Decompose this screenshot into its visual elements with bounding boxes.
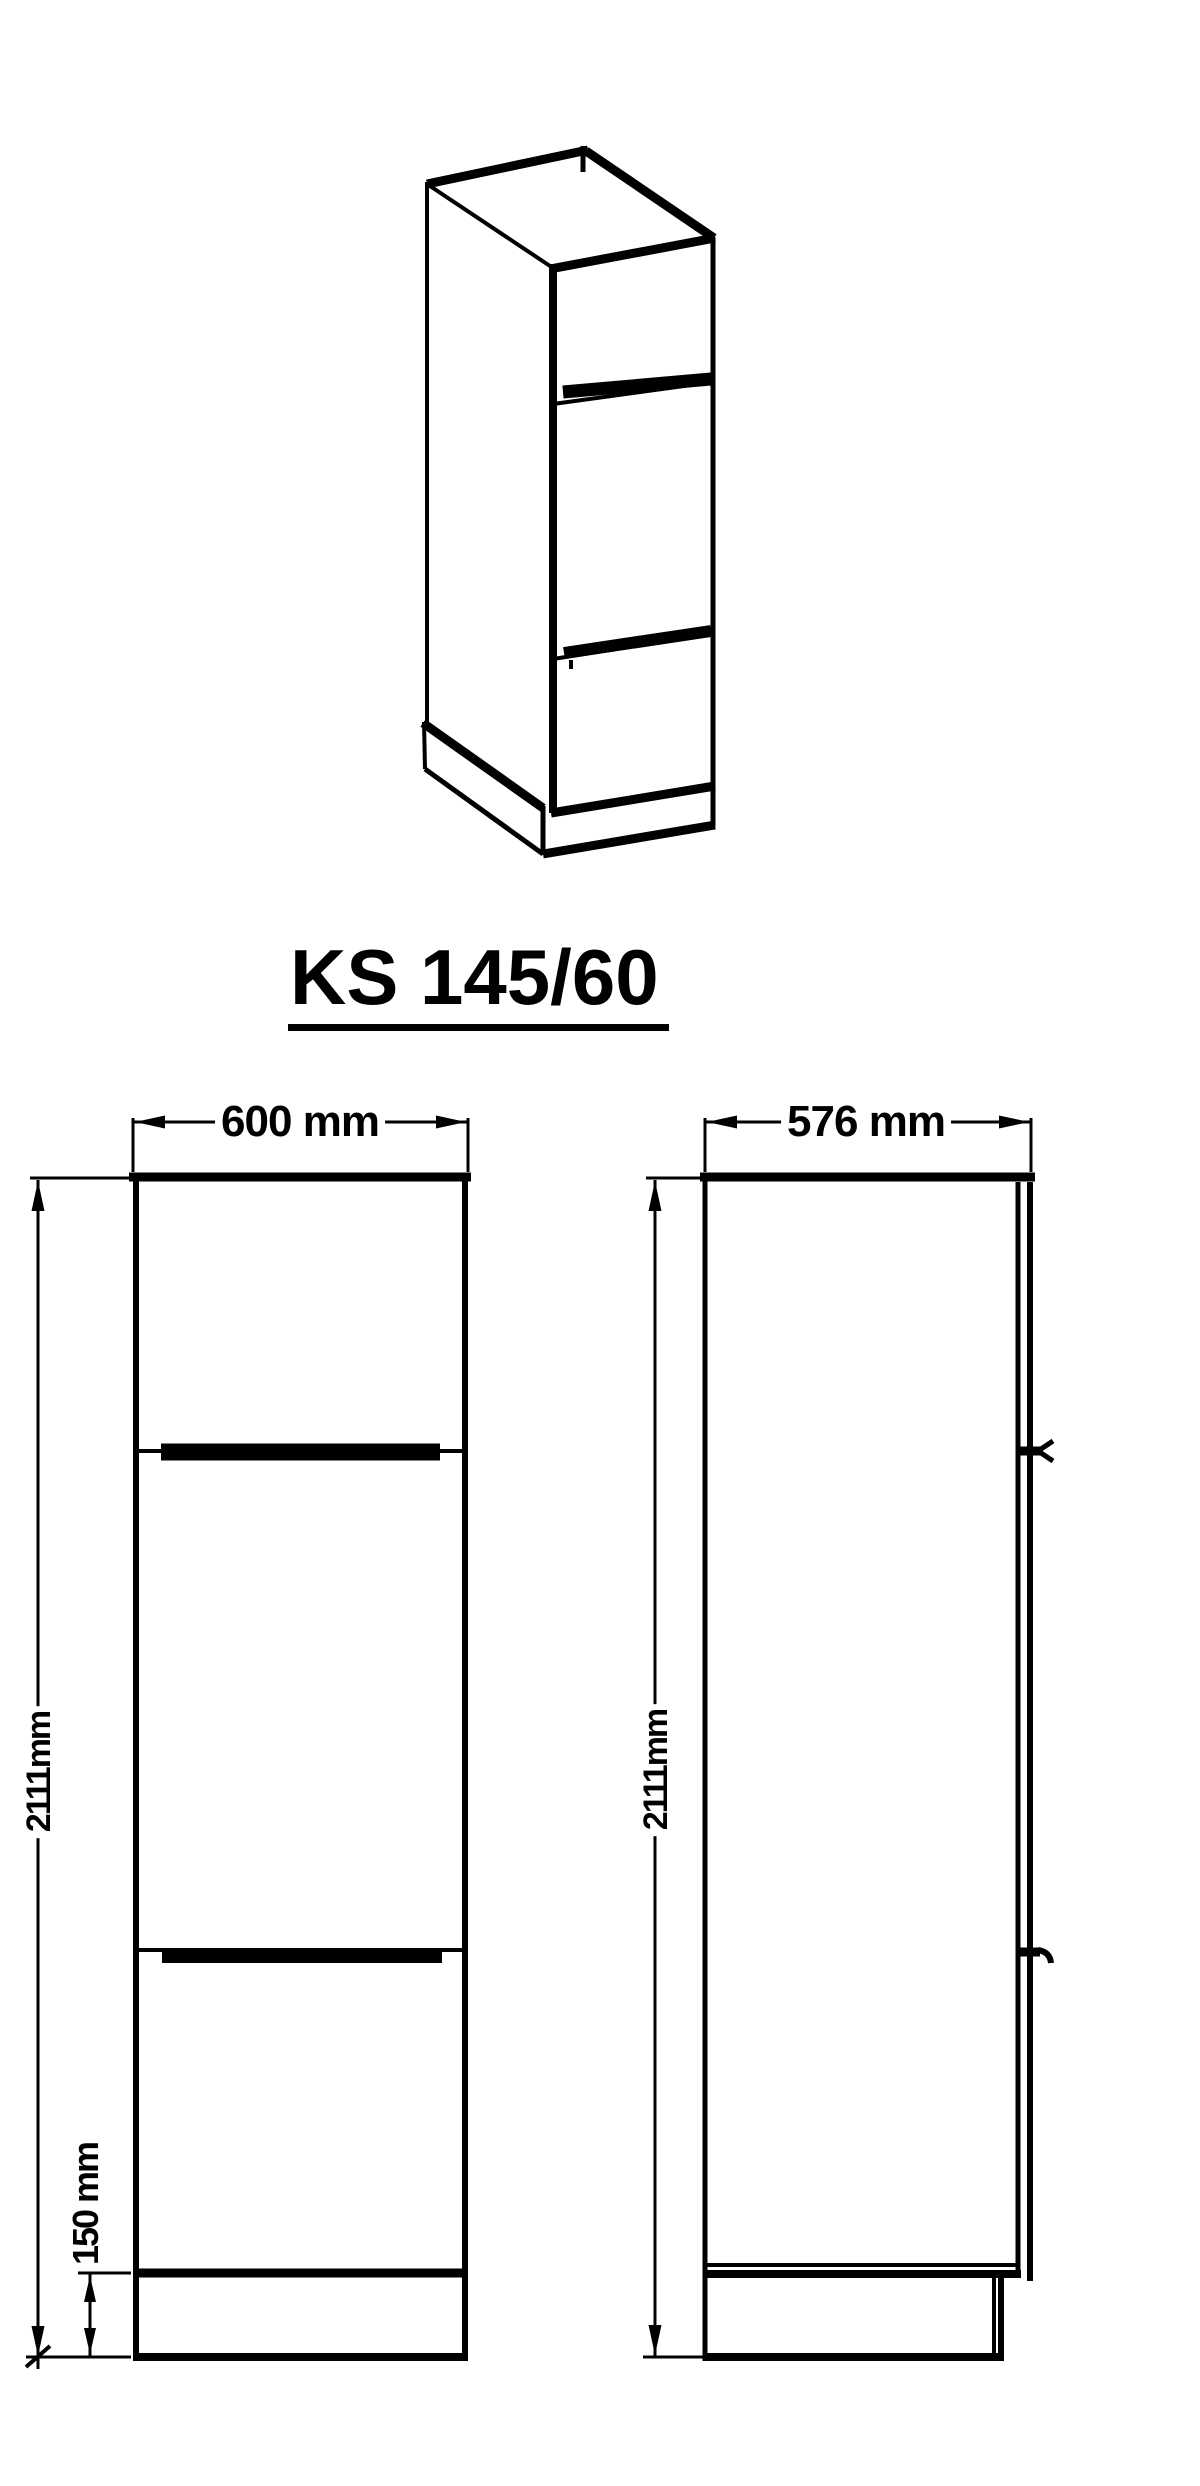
dimension-lines <box>26 1116 1031 2370</box>
side-depth-label: 576 mm <box>781 1098 951 1146</box>
side-view-drawing <box>700 1173 1053 2361</box>
front-plinth-height-label: 150 mm <box>66 2137 106 2271</box>
technical-drawing-page: KS 145/60 600 mm 576 mm 2111mm 2111mm 15… <box>0 0 1200 2486</box>
model-title: KS 145/60 <box>288 938 669 1031</box>
front-view-drawing <box>129 1173 471 2361</box>
iso-view-drawing <box>423 146 715 855</box>
side-height-label: 2111mm <box>637 1704 675 1836</box>
drawing-linework <box>0 0 1200 2486</box>
handle-profile-upper <box>1016 1441 1053 1461</box>
front-height-label: 2111mm <box>20 1706 58 1838</box>
handle-profile-lower <box>1016 1950 1051 1963</box>
front-width-label: 600 mm <box>215 1098 385 1146</box>
